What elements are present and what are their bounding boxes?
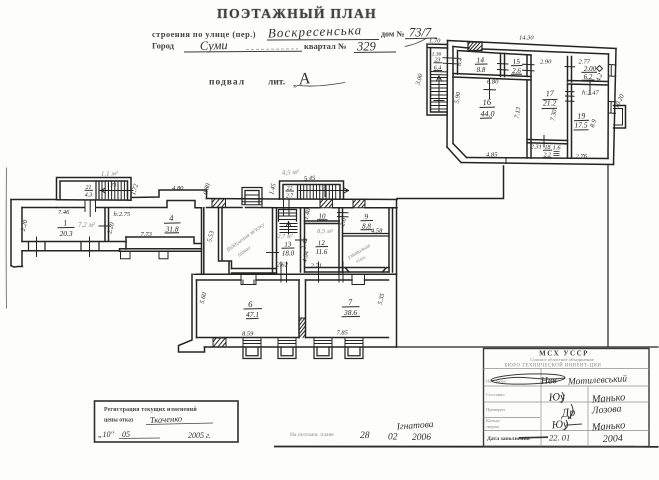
svg-text:ПОЭТАЖНЫЙ ПЛАН: ПОЭТАЖНЫЙ ПЛАН (217, 5, 377, 21)
svg-text:20.3: 20.3 (59, 229, 72, 238)
svg-text:7.73: 7.73 (141, 231, 153, 238)
svg-text:„: „ (293, 80, 297, 89)
svg-text:2.7: 2.7 (286, 194, 294, 200)
svg-text:дом №: дом № (381, 30, 404, 39)
svg-text:2.71: 2.71 (311, 263, 322, 270)
svg-text:h:2.75: h:2.75 (114, 211, 132, 218)
svg-text:квартал №: квартал № (304, 41, 346, 51)
svg-text:Суми: Суми (200, 38, 228, 53)
svg-text:14.30: 14.30 (519, 35, 534, 42)
svg-text:8.59: 8.59 (242, 331, 254, 338)
svg-text:4.85: 4.85 (486, 152, 498, 159)
svg-text:4.3: 4.3 (85, 192, 93, 199)
svg-text:13: 13 (284, 240, 292, 249)
svg-text:7,2 м²: 7,2 м² (78, 221, 96, 229)
svg-text:Юу: Юу (550, 418, 568, 431)
svg-text:подвал: подвал (209, 78, 245, 88)
svg-text:1,1 м²: 1,1 м² (101, 169, 119, 178)
svg-text:7.46: 7.46 (58, 209, 70, 216)
svg-text:329: 329 (356, 40, 377, 54)
svg-text:18.0: 18.0 (282, 250, 295, 258)
svg-text:7.85: 7.85 (337, 330, 349, 337)
svg-text:h:2.47: h:2.47 (582, 90, 600, 97)
svg-text:2004: 2004 (603, 433, 624, 445)
svg-text:14: 14 (476, 55, 484, 65)
svg-text:6.80: 6.80 (487, 79, 499, 86)
svg-text:12: 12 (317, 239, 325, 248)
svg-text:2005 г.: 2005 г. (188, 431, 211, 440)
svg-text:8,5 м²: 8,5 м² (317, 228, 334, 235)
svg-text:2006: 2006 (412, 433, 431, 443)
svg-text:Сумское областное объединение: Сумское областное объединение (530, 357, 594, 362)
svg-text:Город: Город (152, 41, 175, 51)
svg-text:Лозова: Лозова (590, 403, 621, 416)
svg-text:Нвв: Нвв (539, 375, 557, 387)
svg-text:2,7 м²: 2,7 м² (278, 233, 293, 240)
svg-text:21.2: 21.2 (543, 99, 556, 108)
svg-text:47.1: 47.1 (246, 310, 259, 319)
svg-text:05: 05 (122, 430, 130, 439)
svg-text:31.8: 31.8 (164, 225, 178, 234)
svg-text:44.0: 44.0 (481, 110, 495, 119)
svg-text:2.90: 2.90 (540, 59, 552, 66)
svg-text:4,5 м²: 4,5 м² (282, 168, 300, 177)
svg-text:4.80: 4.80 (172, 185, 184, 192)
svg-text:сверил: сверил (486, 424, 500, 429)
svg-text:Ткаченко: Ткаченко (150, 413, 183, 425)
svg-text:16: 16 (482, 97, 492, 108)
svg-text:На поэтажн. плане: На поэтажн. плане (290, 432, 334, 438)
svg-text:17.5: 17.5 (574, 121, 587, 130)
svg-text:19: 19 (577, 111, 586, 121)
svg-text:Дата заполнения: Дата заполнения (487, 436, 530, 442)
svg-text:1.73: 1.73 (107, 183, 117, 189)
svg-text:Кальку: Кальку (486, 418, 501, 423)
svg-text:28: 28 (360, 431, 370, 441)
svg-text:лит.: лит. (268, 78, 285, 88)
svg-text:38.6: 38.6 (343, 308, 357, 317)
svg-text:8.8: 8.8 (477, 66, 486, 74)
svg-text:Проверил: Проверил (486, 407, 506, 412)
svg-text:1.6: 1.6 (553, 145, 562, 152)
svg-text:2.62: 2.62 (277, 262, 289, 269)
svg-text:02: 02 (388, 433, 398, 443)
svg-text:строения по улице (пер.): строения по улице (пер.) (152, 30, 256, 39)
svg-text:1: 1 (63, 218, 68, 227)
svg-text:4.58: 4.58 (371, 228, 383, 235)
svg-text:Регистрация текущих изменений: Регистрация текущих изменений (104, 406, 197, 413)
svg-text:2.76: 2.76 (576, 153, 588, 160)
svg-text:22. 01: 22. 01 (549, 433, 570, 443)
svg-text:Составил: Составил (486, 392, 505, 397)
svg-text:1.70: 1.70 (429, 38, 441, 45)
svg-text:БЮРО ТЕХНИЧЕСКОЙ ИНВЕНТ-ЦИИ: БЮРО ТЕХНИЧЕСКОЙ ИНВЕНТ-ЦИИ (505, 363, 602, 369)
svg-text:11.6: 11.6 (316, 248, 328, 256)
svg-text:цены отказ: цены отказ (104, 418, 134, 424)
svg-text:5.45: 5.45 (304, 175, 316, 183)
svg-text:15: 15 (512, 57, 520, 67)
svg-text:2.31: 2.31 (531, 144, 542, 151)
svg-text:„10": „10" (98, 430, 114, 439)
